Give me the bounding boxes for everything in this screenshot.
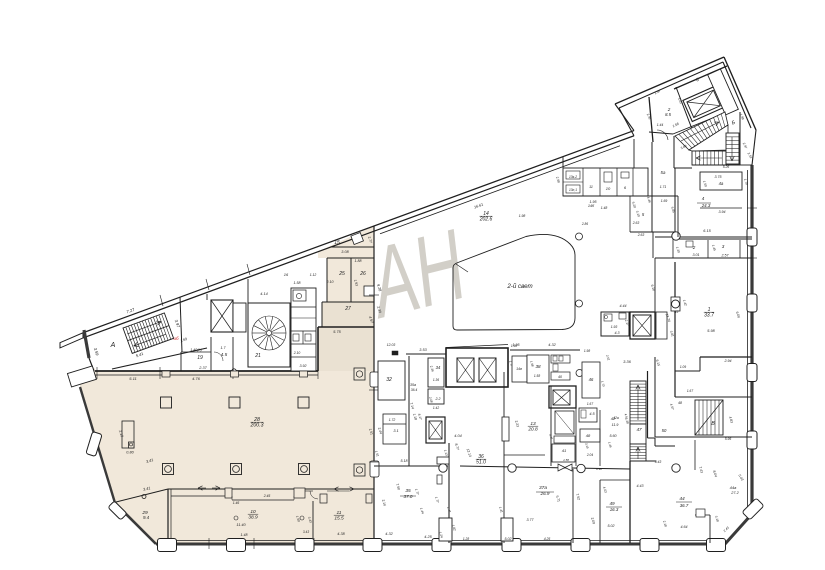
svg-text:19: 19 [197, 355, 203, 361]
svg-text:2: 2 [692, 245, 696, 250]
svg-text:13н,1: 13н,1 [569, 188, 577, 192]
svg-text:5.60: 5.60 [610, 434, 617, 438]
svg-text:3.92: 3.92 [300, 364, 307, 368]
svg-text:1.28: 1.28 [463, 537, 469, 541]
svg-text:202.6: 202.6 [479, 217, 493, 223]
svg-text:6.15: 6.15 [703, 229, 711, 233]
svg-text:.45: .45 [674, 310, 679, 314]
svg-text:1.98: 1.98 [511, 344, 517, 348]
svg-text:4.14: 4.14 [260, 292, 267, 296]
svg-text:3.75: 3.75 [715, 175, 722, 179]
svg-text:9.4: 9.4 [143, 515, 150, 520]
svg-text:1.98: 1.98 [519, 214, 526, 218]
svg-text:0.90: 0.90 [596, 467, 602, 471]
svg-text:5.11: 5.11 [129, 376, 137, 381]
svg-text:5.75: 5.75 [333, 330, 341, 334]
svg-text:48: 48 [678, 401, 682, 405]
svg-text:1.40(h): 1.40(h) [190, 348, 201, 352]
svg-text:4.38: 4.38 [337, 532, 345, 536]
svg-text:1.69: 1.69 [661, 199, 668, 203]
svg-text:4.04: 4.04 [454, 434, 461, 438]
svg-text:25: 25 [338, 271, 345, 277]
svg-text:4.76: 4.76 [192, 376, 201, 381]
svg-text:27: 27 [344, 306, 351, 312]
svg-text:4.64: 4.64 [681, 525, 688, 529]
svg-text:27.2: 27.2 [730, 491, 739, 495]
svg-text:1.44: 1.44 [657, 123, 664, 127]
svg-text:8.5: 8.5 [665, 112, 671, 117]
svg-text:1.88: 1.88 [355, 259, 362, 263]
svg-text:2.10: 2.10 [326, 280, 334, 284]
svg-text:33.7: 33.7 [704, 313, 714, 319]
svg-text:1.67: 1.67 [587, 402, 593, 406]
svg-text:4.43: 4.43 [637, 484, 644, 488]
svg-text:14б: 14б [588, 204, 595, 208]
svg-text:иб: иб [173, 336, 179, 341]
svg-text:1.58: 1.58 [294, 281, 301, 285]
svg-text:1.58: 1.58 [563, 458, 569, 462]
svg-text:5.02: 5.02 [505, 537, 512, 541]
svg-text:2.04: 2.04 [586, 453, 593, 457]
svg-text:5а: 5а [661, 170, 666, 175]
svg-text:1.67: 1.67 [687, 389, 693, 393]
svg-text:5.18: 5.18 [401, 459, 408, 463]
svg-text:3: 3 [722, 244, 725, 249]
svg-text:3.36: 3.36 [623, 359, 632, 364]
svg-text:36.4: 36.4 [411, 388, 418, 392]
svg-text:26: 26 [359, 271, 366, 277]
svg-text:48: 48 [586, 433, 591, 438]
svg-text:2.63: 2.63 [632, 221, 640, 225]
svg-text:3.01: 3.01 [693, 253, 700, 257]
svg-text:4.44: 4.44 [620, 304, 627, 308]
svg-text:5.26: 5.26 [723, 165, 730, 169]
svg-text:46: 46 [589, 377, 594, 382]
svg-text:11: 11 [589, 185, 593, 189]
svg-text:13я-2: 13я-2 [569, 175, 577, 179]
svg-text:1.12: 1.12 [310, 273, 317, 277]
svg-text:42а: 42а [613, 416, 619, 420]
svg-text:20.8: 20.8 [527, 427, 538, 433]
svg-text:1.93: 1.93 [611, 325, 618, 329]
svg-text:12.03: 12.03 [387, 343, 396, 347]
svg-text:4.43: 4.43 [655, 460, 662, 464]
svg-text:11.9: 11.9 [612, 423, 619, 427]
svg-text:3.94: 3.94 [719, 210, 726, 214]
svg-text:38.9: 38.9 [248, 515, 258, 521]
svg-text:44: 44 [679, 496, 685, 502]
svg-text:2.86: 2.86 [581, 222, 588, 226]
svg-text:1.36: 1.36 [433, 378, 439, 382]
svg-text:2.94: 2.94 [724, 359, 732, 363]
svg-text:5.98: 5.98 [707, 329, 715, 333]
svg-text:1.72: 1.72 [389, 418, 396, 422]
svg-text:40: 40 [558, 375, 562, 379]
svg-text:3.77: 3.77 [527, 518, 535, 522]
svg-text:2-й свет: 2-й свет [506, 283, 532, 290]
svg-text:11.40: 11.40 [236, 523, 246, 527]
svg-text:2.63: 2.63 [637, 233, 645, 237]
svg-text:1.46: 1.46 [233, 501, 240, 505]
svg-text:15: 15 [334, 240, 340, 246]
svg-text:3.53: 3.53 [419, 348, 427, 352]
svg-text:4.5: 4.5 [589, 412, 595, 416]
svg-text:4.25: 4.25 [424, 535, 432, 539]
svg-text:2.37: 2.37 [198, 366, 207, 370]
svg-text:4.32: 4.32 [385, 532, 393, 536]
svg-text:49: 49 [609, 501, 615, 506]
svg-text:51.0: 51.0 [476, 460, 486, 466]
svg-text:2.2: 2.2 [435, 397, 441, 401]
svg-text:35а: 35а [410, 383, 416, 387]
svg-text:1.98: 1.98 [584, 349, 590, 353]
svg-text:2.10: 2.10 [293, 351, 301, 355]
svg-text:50: 50 [662, 428, 667, 433]
svg-text:4.32: 4.32 [548, 343, 556, 347]
svg-text:2.45: 2.45 [263, 494, 271, 498]
svg-text:1.48: 1.48 [241, 533, 248, 537]
svg-text:1.71: 1.71 [660, 185, 667, 189]
svg-text:5.02: 5.02 [608, 524, 615, 528]
svg-text:38: 38 [535, 364, 541, 369]
svg-text:1.42: 1.42 [433, 406, 439, 410]
svg-text:36.7: 36.7 [680, 503, 689, 508]
svg-text:0.80: 0.80 [126, 451, 134, 455]
svg-text:3.43: 3.43 [303, 530, 309, 534]
svg-text:14в: 14в [516, 367, 522, 371]
svg-text:37.0: 37.0 [404, 494, 413, 499]
svg-text:200.3: 200.3 [250, 423, 264, 429]
svg-text:А: А [110, 342, 116, 349]
svg-text:44а: 44а [730, 485, 737, 490]
svg-text:4: 4 [702, 196, 705, 201]
svg-text:21: 21 [254, 353, 261, 359]
svg-text:1.48: 1.48 [601, 206, 608, 210]
svg-text:32: 32 [386, 377, 392, 383]
svg-text:34: 34 [436, 365, 441, 370]
svg-text:3.1: 3.1 [393, 429, 398, 433]
svg-text:16: 16 [284, 272, 289, 277]
svg-text:4.3: 4.3 [615, 331, 620, 335]
svg-text:16.3: 16.3 [610, 507, 619, 512]
svg-text:47: 47 [636, 427, 642, 432]
svg-text:3.08: 3.08 [341, 250, 349, 254]
svg-text:1.09: 1.09 [680, 365, 686, 369]
svg-text:24.3: 24.3 [701, 203, 711, 208]
svg-text:41: 41 [562, 448, 566, 453]
svg-text:4а: 4а [719, 181, 724, 186]
svg-text:4.25: 4.25 [544, 537, 551, 541]
svg-text:1.58: 1.58 [534, 374, 540, 378]
svg-text:5.95: 5.95 [725, 437, 732, 441]
svg-text:15.5: 15.5 [334, 516, 344, 522]
svg-text:10: 10 [606, 186, 611, 191]
svg-text:2.57: 2.57 [721, 254, 730, 258]
